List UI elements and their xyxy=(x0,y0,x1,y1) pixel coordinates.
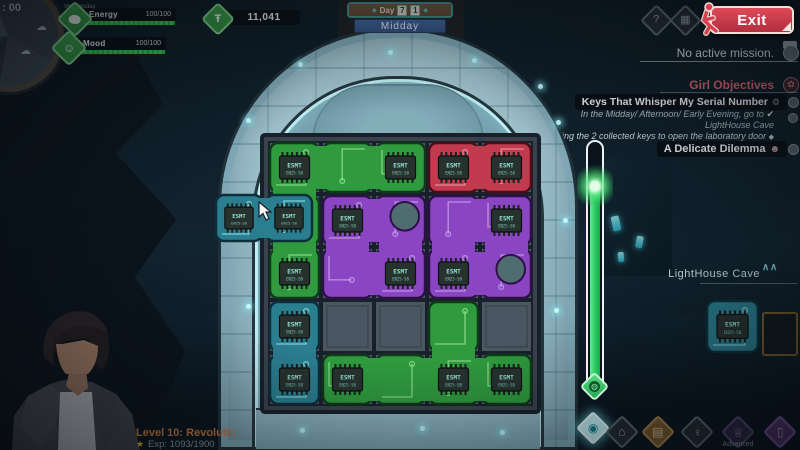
energy-value: 100/100 xyxy=(146,11,171,18)
question-icon: ? xyxy=(653,15,659,26)
mood-label: Mood xyxy=(83,39,106,48)
mood-fill xyxy=(78,50,166,55)
glow-dot xyxy=(538,84,543,89)
mood-bar: Mood 100/100 xyxy=(78,37,166,55)
advanced-label: Advanced xyxy=(716,441,760,448)
energy-label: Energy xyxy=(89,10,118,19)
player-level: Level 10: Revolutic xyxy=(136,427,308,439)
glow-dot xyxy=(246,304,251,309)
crystal-icon xyxy=(618,252,625,262)
glow-dot xyxy=(563,218,568,223)
chevron-up-icon[interactable]: ∧ xyxy=(770,265,777,271)
screw-icon: ◆ xyxy=(372,7,377,14)
clock-time: : 00 xyxy=(2,2,21,14)
rocks xyxy=(596,158,672,276)
detail2-text: Bring the 2 collected keys to open the l… xyxy=(553,131,766,141)
glow-dot xyxy=(556,120,561,125)
player-exp: Exp: 1093/1900 xyxy=(148,439,215,450)
gear-icon: ⚙ xyxy=(772,97,780,108)
objective-detail: In the Midday/ Afternoon/ Early Evening,… xyxy=(581,109,774,131)
objective-dot xyxy=(788,113,798,123)
energy-glyph xyxy=(69,15,81,24)
objective-dot xyxy=(788,97,799,108)
person-icon: ☻ xyxy=(769,144,780,155)
day-plank: ◆ Day 7 1 ◆ xyxy=(347,2,453,18)
day-digit: 7 xyxy=(397,5,407,16)
puzzle-progress-bar xyxy=(586,140,604,392)
objective-entry[interactable]: Keys That Whisper My Serial Number ⚙ xyxy=(575,94,787,110)
glow-dot xyxy=(246,118,251,123)
star-icon: ★ xyxy=(136,439,144,450)
screw-icon: ◆ xyxy=(423,7,428,14)
divider xyxy=(660,92,798,93)
glow-dot xyxy=(500,430,505,435)
cloud-icon: ☁ xyxy=(20,44,31,57)
currency-display: 11,041 xyxy=(228,10,300,25)
progress-fill xyxy=(590,180,600,388)
energy-fill xyxy=(84,21,176,26)
glow-dot xyxy=(472,58,477,63)
girl-objectives-title: Girl Objectives xyxy=(689,78,774,92)
glow-dot xyxy=(420,426,425,431)
gem-core-icon: ◍ xyxy=(589,381,600,392)
currency-glyph: Ŧ xyxy=(215,13,222,24)
game-screen: ESMTEN25-S8ESMTEN25-S8ESMTEN25-S8ESMTEN2… xyxy=(0,0,800,450)
flower-icon: ✿ xyxy=(783,77,799,93)
time-of-day-banner: Midday xyxy=(354,19,446,33)
help-button[interactable]: ? xyxy=(640,4,673,37)
day-label: Day xyxy=(380,6,395,15)
mission-icon xyxy=(783,45,799,61)
energy-bar: Energy 100/100 xyxy=(84,8,176,26)
day-digit: 1 xyxy=(410,5,420,16)
objective-title: Keys That Whisper My Serial Number xyxy=(582,96,768,108)
diamond-bullet-icon: ◆ xyxy=(769,134,774,141)
time-of-day: Midday xyxy=(381,21,419,32)
detail-line1: In the Midday/ Afternoon/ Early Evening,… xyxy=(581,109,764,119)
mood-value: 100/100 xyxy=(136,40,161,47)
day-sign: ◆ Day 7 1 ◆ Midday xyxy=(347,2,453,33)
glow-dot xyxy=(388,50,393,55)
currency-icon: Ŧ xyxy=(201,2,235,36)
divider xyxy=(700,283,798,284)
exit-label: Exit xyxy=(737,12,767,29)
check-icon: ✔ xyxy=(766,109,774,119)
chevron-up-icon[interactable]: ∧ xyxy=(762,265,769,271)
currency-value: 11,041 xyxy=(247,12,280,23)
glow-dot xyxy=(554,308,559,313)
objective-entry[interactable]: A Delicate Dilemma ☻ xyxy=(657,141,787,157)
mouse-cursor xyxy=(258,201,276,223)
glow-dot xyxy=(298,62,303,67)
location-panel-title: LightHouse Cave xyxy=(668,268,760,280)
mission-status: No active mission. xyxy=(677,46,774,60)
glow-dot xyxy=(300,428,305,433)
glow-dot xyxy=(234,208,241,215)
divider xyxy=(640,61,798,62)
runner-icon xyxy=(690,2,724,38)
detail-line2: LightHouse Cave xyxy=(705,120,774,130)
objective-title: A Delicate Dilemma xyxy=(664,143,766,155)
inventory-slot-empty[interactable] xyxy=(762,312,798,356)
player-character xyxy=(0,296,142,450)
page-curl xyxy=(782,22,791,31)
cloud-icon: ☁ xyxy=(36,20,47,33)
objective-dot xyxy=(788,144,799,155)
mood-glyph: ☺ xyxy=(63,42,75,54)
